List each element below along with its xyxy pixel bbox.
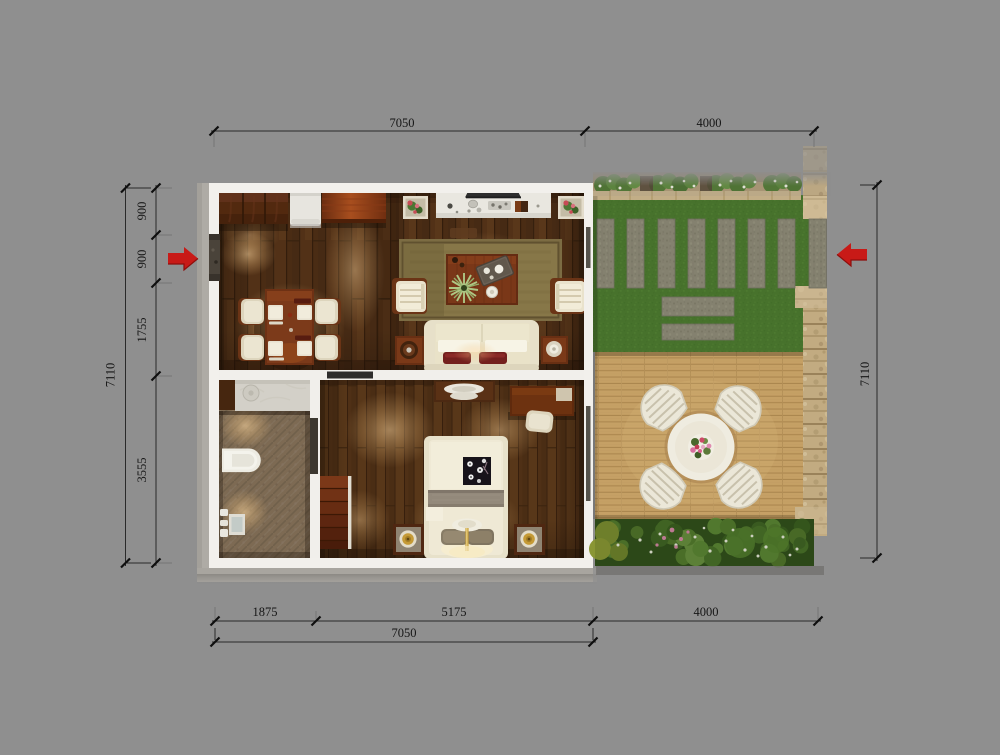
svg-text:3555: 3555 (135, 458, 149, 483)
svg-text:7110: 7110 (858, 362, 872, 387)
svg-text:4000: 4000 (694, 605, 719, 619)
svg-text:900: 900 (135, 250, 149, 269)
svg-text:5175: 5175 (442, 605, 467, 619)
svg-text:7050: 7050 (390, 116, 415, 130)
svg-text:4000: 4000 (697, 116, 722, 130)
svg-text:7050: 7050 (392, 626, 417, 640)
svg-text:1755: 1755 (135, 318, 149, 343)
svg-text:1875: 1875 (253, 605, 278, 619)
svg-text:7110: 7110 (104, 363, 118, 388)
svg-text:900: 900 (135, 202, 149, 221)
